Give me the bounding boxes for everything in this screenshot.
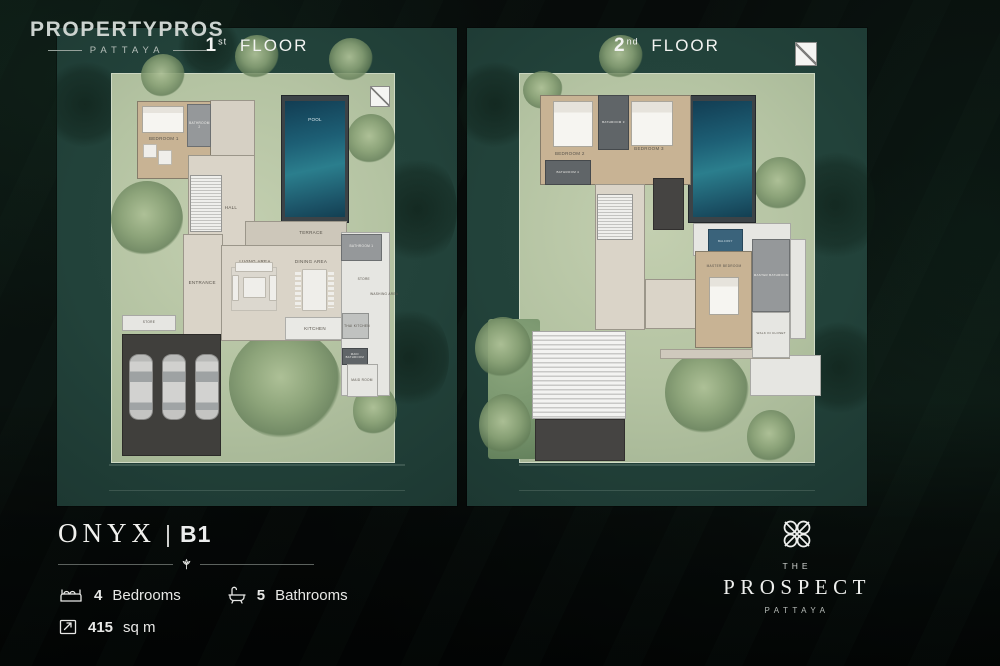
room-label: MAID ROOM bbox=[351, 379, 372, 383]
room-label: BEDROOM 3 bbox=[634, 146, 664, 151]
room-dining-area: DINING AREA bbox=[285, 256, 337, 268]
room-bedroom-3: BEDROOM 3 bbox=[625, 143, 673, 155]
room-label: HALL bbox=[225, 205, 237, 210]
tree-shape bbox=[479, 394, 531, 456]
furn-shape bbox=[243, 277, 265, 298]
room-washing-area: WASHING AREA bbox=[368, 284, 400, 306]
room-master-bathroom: MASTER BATHROOM bbox=[752, 239, 790, 312]
unit-title: ONYX | B1 bbox=[58, 518, 348, 549]
brand-dash-left bbox=[48, 50, 82, 51]
floor-title-2: 2nd FLOOR bbox=[467, 35, 867, 57]
developer-logo: THE PROSPECT PATTAYA bbox=[722, 516, 872, 615]
unit-specs: 4 Bedrooms 5 Bathrooms bbox=[58, 585, 348, 636]
room-bathroom-2: BATHROOM 2 bbox=[187, 104, 211, 148]
bed-shape bbox=[142, 106, 184, 133]
car-shape bbox=[129, 354, 153, 419]
floor-number: 2 bbox=[614, 35, 627, 56]
room-bedroom-1: BEDROOM 1 bbox=[140, 132, 188, 144]
room-terrace: TERRACE bbox=[287, 227, 335, 239]
room-label: BATHROOM 3 bbox=[602, 121, 625, 125]
bed-shape bbox=[553, 101, 593, 148]
area-label: sq m bbox=[123, 619, 156, 636]
bathrooms-value: 5 bbox=[257, 587, 265, 604]
tree-shape bbox=[747, 410, 795, 463]
tree-shape bbox=[754, 157, 806, 210]
brand-sub-text: PATTAYA bbox=[90, 45, 165, 56]
furn-shape bbox=[269, 275, 277, 302]
service-shape bbox=[790, 239, 806, 338]
room-bedroom-2: BEDROOM 2 bbox=[546, 148, 594, 160]
spec-bedrooms: 4 Bedrooms bbox=[58, 586, 181, 604]
room-bathroom-4: BATHROOM 4 bbox=[545, 160, 591, 185]
bathrooms-label: Bathrooms bbox=[275, 587, 348, 604]
spec-row-1: 4 Bedrooms 5 Bathrooms bbox=[58, 585, 348, 605]
floor-ordinal: nd bbox=[627, 36, 639, 46]
room-label: BEDROOM 1 bbox=[149, 136, 179, 141]
room-label: BATHROOM 4 bbox=[556, 171, 579, 175]
chairs-shape bbox=[328, 272, 334, 308]
unit-divider bbox=[58, 558, 314, 571]
room-label: MASTER BEDROOM bbox=[707, 265, 742, 269]
room-label: KITCHEN bbox=[304, 326, 326, 331]
tree-shape bbox=[111, 181, 183, 257]
room-master-bedroom: MASTER BEDROOM bbox=[699, 260, 749, 272]
bed-shape bbox=[631, 101, 673, 146]
room-label: STORE bbox=[143, 321, 155, 325]
brand-subtitle: PATTAYA bbox=[30, 45, 224, 56]
area-value: 415 bbox=[88, 619, 113, 636]
room-maid-room: MAID ROOM bbox=[343, 375, 381, 387]
bath-icon bbox=[227, 585, 247, 605]
mark-shape bbox=[370, 86, 390, 107]
room-label: BATHROOM 2 bbox=[188, 122, 210, 130]
room-label: MAID BATHROOM bbox=[343, 353, 367, 360]
service-shape bbox=[750, 355, 820, 395]
bedrooms-label: Bedrooms bbox=[112, 587, 180, 604]
furn-shape bbox=[143, 144, 157, 158]
room-kitchen: KITCHEN bbox=[291, 322, 339, 334]
room-hall: HALL bbox=[211, 202, 251, 214]
furn-shape bbox=[302, 269, 328, 311]
car-shape bbox=[162, 354, 186, 419]
tree-shape bbox=[347, 114, 395, 164]
room-label: BALCONY bbox=[718, 240, 733, 243]
unit-info: ONYX | B1 bbox=[58, 518, 348, 649]
unit-name: ONYX bbox=[58, 518, 156, 549]
room-label: DINING AREA bbox=[295, 259, 327, 264]
room-label: ENTRANCE bbox=[189, 280, 216, 285]
room-label: WASHING AREA bbox=[370, 293, 398, 297]
spec-bathrooms: 5 Bathrooms bbox=[227, 585, 348, 605]
spec-area: 415 sq m bbox=[58, 618, 156, 636]
bedrooms-value: 4 bbox=[94, 587, 102, 604]
room-label: STORE bbox=[358, 278, 370, 282]
room-maid-bathroom: MAID BATHROOM bbox=[342, 348, 368, 365]
floorplan-2: BATHROOM 3BATHROOM 4BEDROOM 2BEDROOM 3BA… bbox=[467, 28, 867, 506]
paved-shape bbox=[535, 419, 625, 461]
room-label: BEDROOM 2 bbox=[555, 151, 585, 156]
room-label: WALK IN CLOSET bbox=[757, 332, 786, 336]
developer-name: PROSPECT bbox=[722, 575, 872, 600]
divider-line-right bbox=[200, 564, 315, 565]
floorplan-panel-1: 1st FLOOR POOLBATHROOM 2BEDROOM 1HALLTER… bbox=[57, 28, 457, 506]
spec-row-2: 415 sq m bbox=[58, 618, 348, 636]
stairs-shape bbox=[597, 194, 633, 240]
brand-dash-right bbox=[173, 50, 207, 51]
road-shape bbox=[109, 464, 405, 466]
room-store: STORE bbox=[131, 316, 167, 328]
developer-pre: THE bbox=[722, 561, 872, 571]
floorplan-1: POOLBATHROOM 2BEDROOM 1HALLTERRACEENTRAN… bbox=[57, 28, 457, 506]
tree-shape bbox=[141, 54, 185, 97]
leaf-icon bbox=[180, 558, 193, 571]
room-label: MASTER BATHROOM bbox=[754, 274, 789, 278]
divider-line-left bbox=[58, 564, 173, 565]
brand-name: PROPERTYPROS bbox=[30, 18, 224, 42]
floorplan-panel-2: 2nd FLOOR BATHROOM 3BATHROOM 4BEDROOM 2B… bbox=[467, 28, 867, 506]
room-bathroom-1: BATHROOM 1 bbox=[341, 234, 382, 262]
furn-shape bbox=[232, 275, 240, 302]
floor-shape bbox=[645, 279, 701, 329]
room-walk-in-closet: WALK IN CLOSET bbox=[752, 322, 790, 346]
room-thai-kitchen: THAI KITCHEN bbox=[337, 321, 377, 333]
car-shape bbox=[195, 354, 219, 419]
area-icon bbox=[58, 618, 78, 636]
knot-icon bbox=[722, 516, 872, 552]
walk-shape bbox=[210, 100, 255, 157]
chairs-shape bbox=[295, 272, 301, 308]
unit-code: B1 bbox=[180, 521, 211, 548]
room-label: BATHROOM 1 bbox=[349, 245, 373, 249]
room-label: POOL bbox=[308, 117, 322, 122]
roof-shape bbox=[532, 331, 626, 419]
room-pool: POOL bbox=[287, 112, 343, 126]
room-label: THAI KITCHEN bbox=[344, 325, 370, 329]
furn-shape bbox=[158, 150, 172, 164]
floor-word: FLOOR bbox=[240, 36, 309, 55]
tree-shape bbox=[229, 329, 341, 439]
paved-shape bbox=[653, 178, 684, 230]
unit-separator: | bbox=[165, 521, 171, 548]
tree-shape bbox=[665, 351, 749, 435]
road-shape bbox=[519, 490, 815, 492]
pool-shape bbox=[693, 101, 752, 218]
road-shape bbox=[109, 490, 405, 492]
brand-logo: PROPERTYPROS PATTAYA bbox=[30, 18, 224, 56]
poster-canvas: { "brand": {"name": "PROPERTYPROS", "sub… bbox=[0, 0, 1000, 666]
bed-icon bbox=[58, 586, 84, 604]
floor-word: FLOOR bbox=[651, 36, 720, 55]
room-label: TERRACE bbox=[299, 230, 323, 235]
road-shape bbox=[519, 464, 815, 466]
developer-sub: PATTAYA bbox=[722, 606, 872, 615]
furn-shape bbox=[235, 262, 273, 272]
room-entrance: ENTRANCE bbox=[180, 277, 224, 289]
bed-shape bbox=[709, 277, 739, 315]
tree-shape bbox=[475, 317, 531, 379]
